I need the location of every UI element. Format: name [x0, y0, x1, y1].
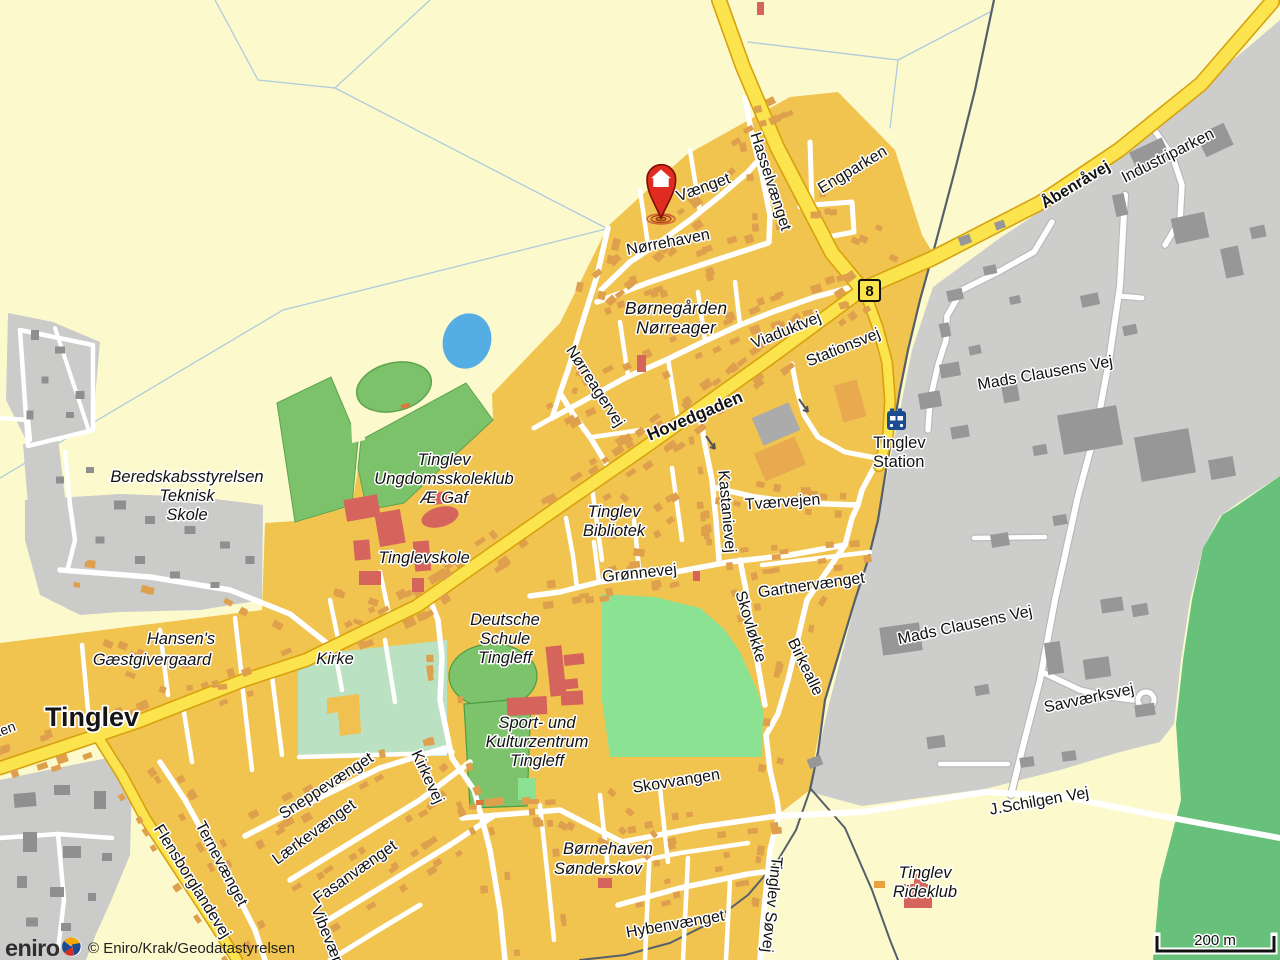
svg-text:Deutsche: Deutsche — [470, 611, 540, 629]
svg-text:Schule: Schule — [480, 630, 530, 648]
svg-text:Ungdomsskoleklub: Ungdomsskoleklub — [374, 470, 513, 488]
svg-text:Sønderskov: Sønderskov — [554, 860, 644, 878]
svg-text:Kirke: Kirke — [316, 650, 354, 668]
svg-text:Tinglev: Tinglev — [873, 434, 926, 452]
svg-text:Tingleff: Tingleff — [510, 752, 566, 770]
svg-text:Teknisk: Teknisk — [159, 487, 215, 505]
svg-text:Skole: Skole — [166, 506, 207, 524]
svg-text:Tinglev: Tinglev — [45, 702, 139, 732]
svg-text:Station: Station — [873, 453, 924, 471]
svg-text:Tinglev: Tinglev — [898, 864, 953, 882]
svg-text:Beredskabsstyrelsen: Beredskabsstyrelsen — [110, 468, 263, 486]
svg-text:Nørreager: Nørreager — [636, 318, 717, 338]
svg-text:Bibliotek: Bibliotek — [583, 522, 646, 540]
svg-text:Tinglev: Tinglev — [587, 503, 642, 521]
svg-text:Tinglev: Tinglev — [417, 451, 472, 469]
svg-text:Æ Gaf: Æ Gaf — [419, 489, 470, 507]
svg-text:Børnehaven: Børnehaven — [563, 840, 653, 858]
svg-text:Hansen's: Hansen's — [147, 630, 215, 648]
svg-text:8: 8 — [865, 283, 873, 300]
svg-text:Tingleff: Tingleff — [478, 649, 534, 667]
svg-text:© Eniro/Krak/Geodatastyrelsen: © Eniro/Krak/Geodatastyrelsen — [88, 940, 295, 957]
svg-text:Gæstgivergaard: Gæstgivergaard — [93, 651, 212, 669]
svg-text:Tinglevskole: Tinglevskole — [378, 549, 470, 567]
svg-text:200 m: 200 m — [1194, 932, 1236, 949]
svg-text:Børnegården: Børnegården — [625, 298, 727, 318]
svg-text:Sport- und: Sport- und — [498, 714, 576, 732]
svg-text:eniro: eniro — [5, 935, 60, 960]
svg-text:Rideklub: Rideklub — [893, 883, 957, 901]
svg-text:Kulturzentrum: Kulturzentrum — [486, 733, 589, 751]
